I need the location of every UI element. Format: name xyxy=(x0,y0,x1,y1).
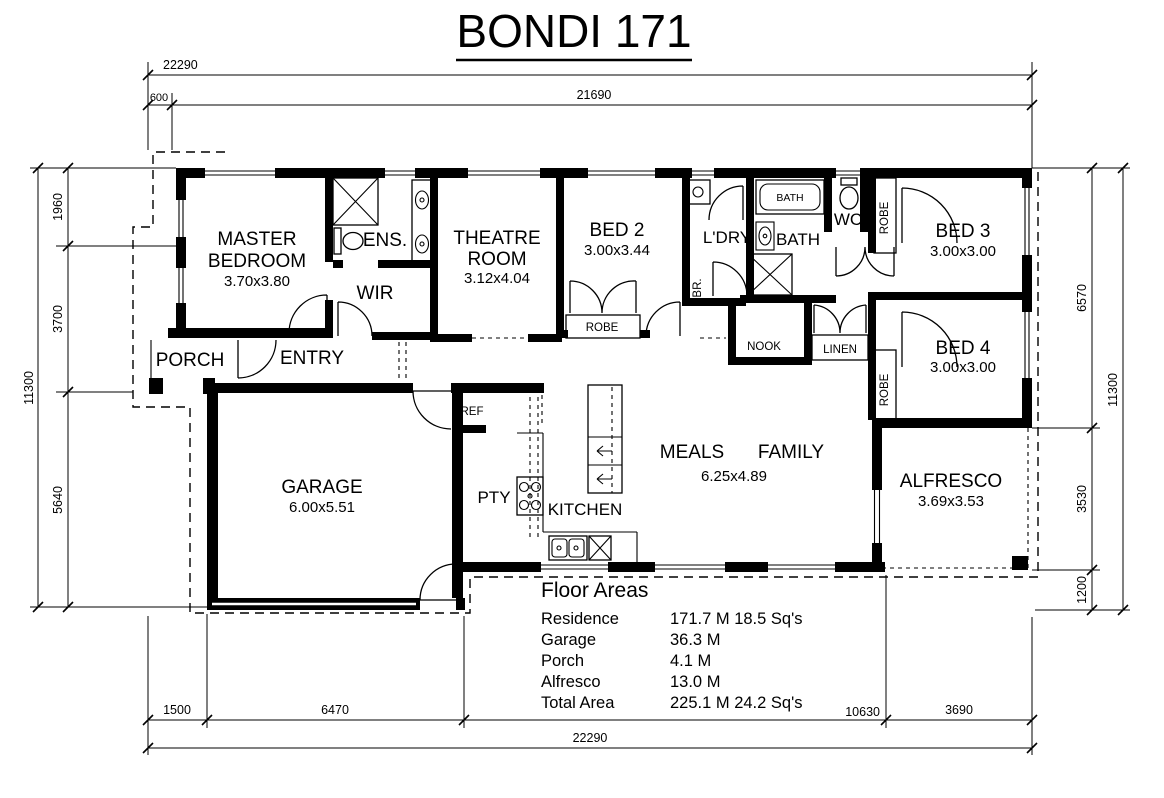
front-door-arc xyxy=(238,340,276,378)
dim-right-overall: 11300 xyxy=(1106,373,1120,407)
dim-left-seg1: 1960 xyxy=(51,193,65,221)
label-robe2: ROBE xyxy=(586,322,619,334)
room-label-bed2: BED 2 xyxy=(590,220,645,241)
page-title: BONDI 171 xyxy=(456,5,691,57)
kitchen-bench xyxy=(517,433,637,562)
room-label-master-1: MASTER xyxy=(217,229,296,250)
room-label-meals: MEALS xyxy=(660,442,724,463)
room-label-garage: GARAGE xyxy=(281,477,362,498)
dimension-top: 22290 600 21690 xyxy=(143,58,1037,168)
entry-opening xyxy=(399,342,406,381)
label-bathtub: BATH xyxy=(776,192,803,204)
hall-doors-arc xyxy=(836,247,894,276)
room-label-wc: WC xyxy=(834,210,862,229)
toilet-icon xyxy=(840,178,858,209)
room-size-garage: 6.00x5.51 xyxy=(289,499,355,516)
room-label-ens: ENS. xyxy=(363,230,407,251)
dim-bottom-seg4: 3690 xyxy=(945,703,973,717)
dim-bottom-seg3: 10630 xyxy=(845,705,880,719)
dim-top-offset: 600 xyxy=(150,92,168,104)
garage-rear-door-arc xyxy=(420,564,456,600)
dim-bottom-seg2: 6470 xyxy=(321,703,349,717)
floor-area-value: 225.1 M 24.2 Sq's xyxy=(670,694,802,712)
shower-icon xyxy=(748,254,792,295)
floor-plan-sheet: BONDI 171 xyxy=(0,0,1164,798)
linen-doors-arc xyxy=(814,305,866,333)
room-label-entry: ENTRY xyxy=(280,348,344,369)
room-size-bed3: 3.00x3.00 xyxy=(930,243,996,260)
floor-area-label: Alfresco xyxy=(541,673,601,691)
floor-areas-title: Floor Areas xyxy=(541,579,648,602)
garage-entry-door-arc xyxy=(413,391,451,429)
drawer-arrow-icon xyxy=(597,474,612,484)
floor-areas: Floor Areas Residence 171.7 M 18.5 Sq's … xyxy=(541,579,802,712)
dishwasher-icon xyxy=(589,536,611,560)
floor-area-label: Porch xyxy=(541,652,584,670)
room-label-theatre-1: THEATRE xyxy=(453,228,540,249)
label-linen: LINEN xyxy=(823,344,857,356)
label-robe3: ROBE xyxy=(879,201,891,234)
label-nook: NOOK xyxy=(747,341,781,353)
dim-right-seg2: 3530 xyxy=(1075,485,1089,513)
room-size-bed4: 3.00x3.00 xyxy=(930,359,996,376)
label-ref: REF xyxy=(461,406,484,418)
dim-bottom-seg1: 1500 xyxy=(163,703,191,717)
floor-area-label: Total Area xyxy=(541,694,615,712)
room-size-theatre: 3.12x4.04 xyxy=(464,270,530,287)
room-label-theatre-2: ROOM xyxy=(467,249,526,270)
room-label-bath: BATH xyxy=(776,230,820,249)
robe2-doors-arc xyxy=(570,281,636,313)
room-size-meals-family: 6.25x4.89 xyxy=(701,468,767,485)
laundry-door-arc xyxy=(709,186,743,220)
floor-area-value: 13.0 M xyxy=(670,673,720,691)
island-bench xyxy=(588,385,622,493)
bath-basin-icon xyxy=(756,222,774,250)
room-label-pty: PTY xyxy=(477,488,510,507)
broom-door-arc xyxy=(713,262,747,296)
drawer-arrow-icon xyxy=(597,446,612,456)
pantry-shelves xyxy=(530,397,538,538)
label-broom: BR. xyxy=(692,278,704,297)
room-label-porch: PORCH xyxy=(156,350,225,371)
floor-area-value: 4.1 M xyxy=(670,652,711,670)
dim-left-overall: 11300 xyxy=(22,371,36,405)
room-label-bed3: BED 3 xyxy=(936,221,991,242)
window-icon xyxy=(541,562,835,572)
room-size-master: 3.70x3.80 xyxy=(224,273,290,290)
room-size-alfresco: 3.69x3.53 xyxy=(918,493,984,510)
room-label-kitchen: KITCHEN xyxy=(548,500,623,519)
shower-icon xyxy=(333,178,378,225)
toilet-icon xyxy=(334,228,363,254)
dim-right-seg1: 6570 xyxy=(1075,284,1089,312)
kitchen-sink-icon xyxy=(549,536,587,560)
bed2-door-arc xyxy=(646,302,680,336)
drawing-title: BONDI 171 xyxy=(456,5,692,60)
room-label-ldry: L'DRY xyxy=(703,228,751,247)
room-label-bed4: BED 4 xyxy=(936,338,991,359)
floor-area-value: 36.3 M xyxy=(670,631,720,649)
double-vanity-icon xyxy=(412,180,432,264)
dim-left-seg2: 3700 xyxy=(51,305,65,333)
dimension-right: 6570 3530 1200 11300 xyxy=(1032,163,1130,615)
window-icon xyxy=(875,490,880,543)
floor-area-value: 171.7 M 18.5 Sq's xyxy=(670,610,802,628)
master-door-arc xyxy=(289,295,327,333)
room-label-master-2: BEDROOM xyxy=(208,251,306,272)
label-robe4: ROBE xyxy=(879,373,891,406)
room-size-bed2: 3.00x3.44 xyxy=(584,242,650,259)
floor-area-label: Residence xyxy=(541,610,619,628)
dim-bottom-overall: 22290 xyxy=(573,731,608,745)
room-label-alfresco: ALFRESCO xyxy=(900,471,1002,492)
dim-top-main: 21690 xyxy=(577,88,612,102)
room-label-wir: WIR xyxy=(357,283,394,304)
room-label-family: FAMILY xyxy=(758,442,824,463)
wir-door-arc xyxy=(338,302,372,336)
dim-left-seg3: 5640 xyxy=(51,486,65,514)
dim-right-seg3: 1200 xyxy=(1075,576,1089,604)
dim-top-overall: 22290 xyxy=(163,58,198,72)
floor-area-label: Garage xyxy=(541,631,596,649)
